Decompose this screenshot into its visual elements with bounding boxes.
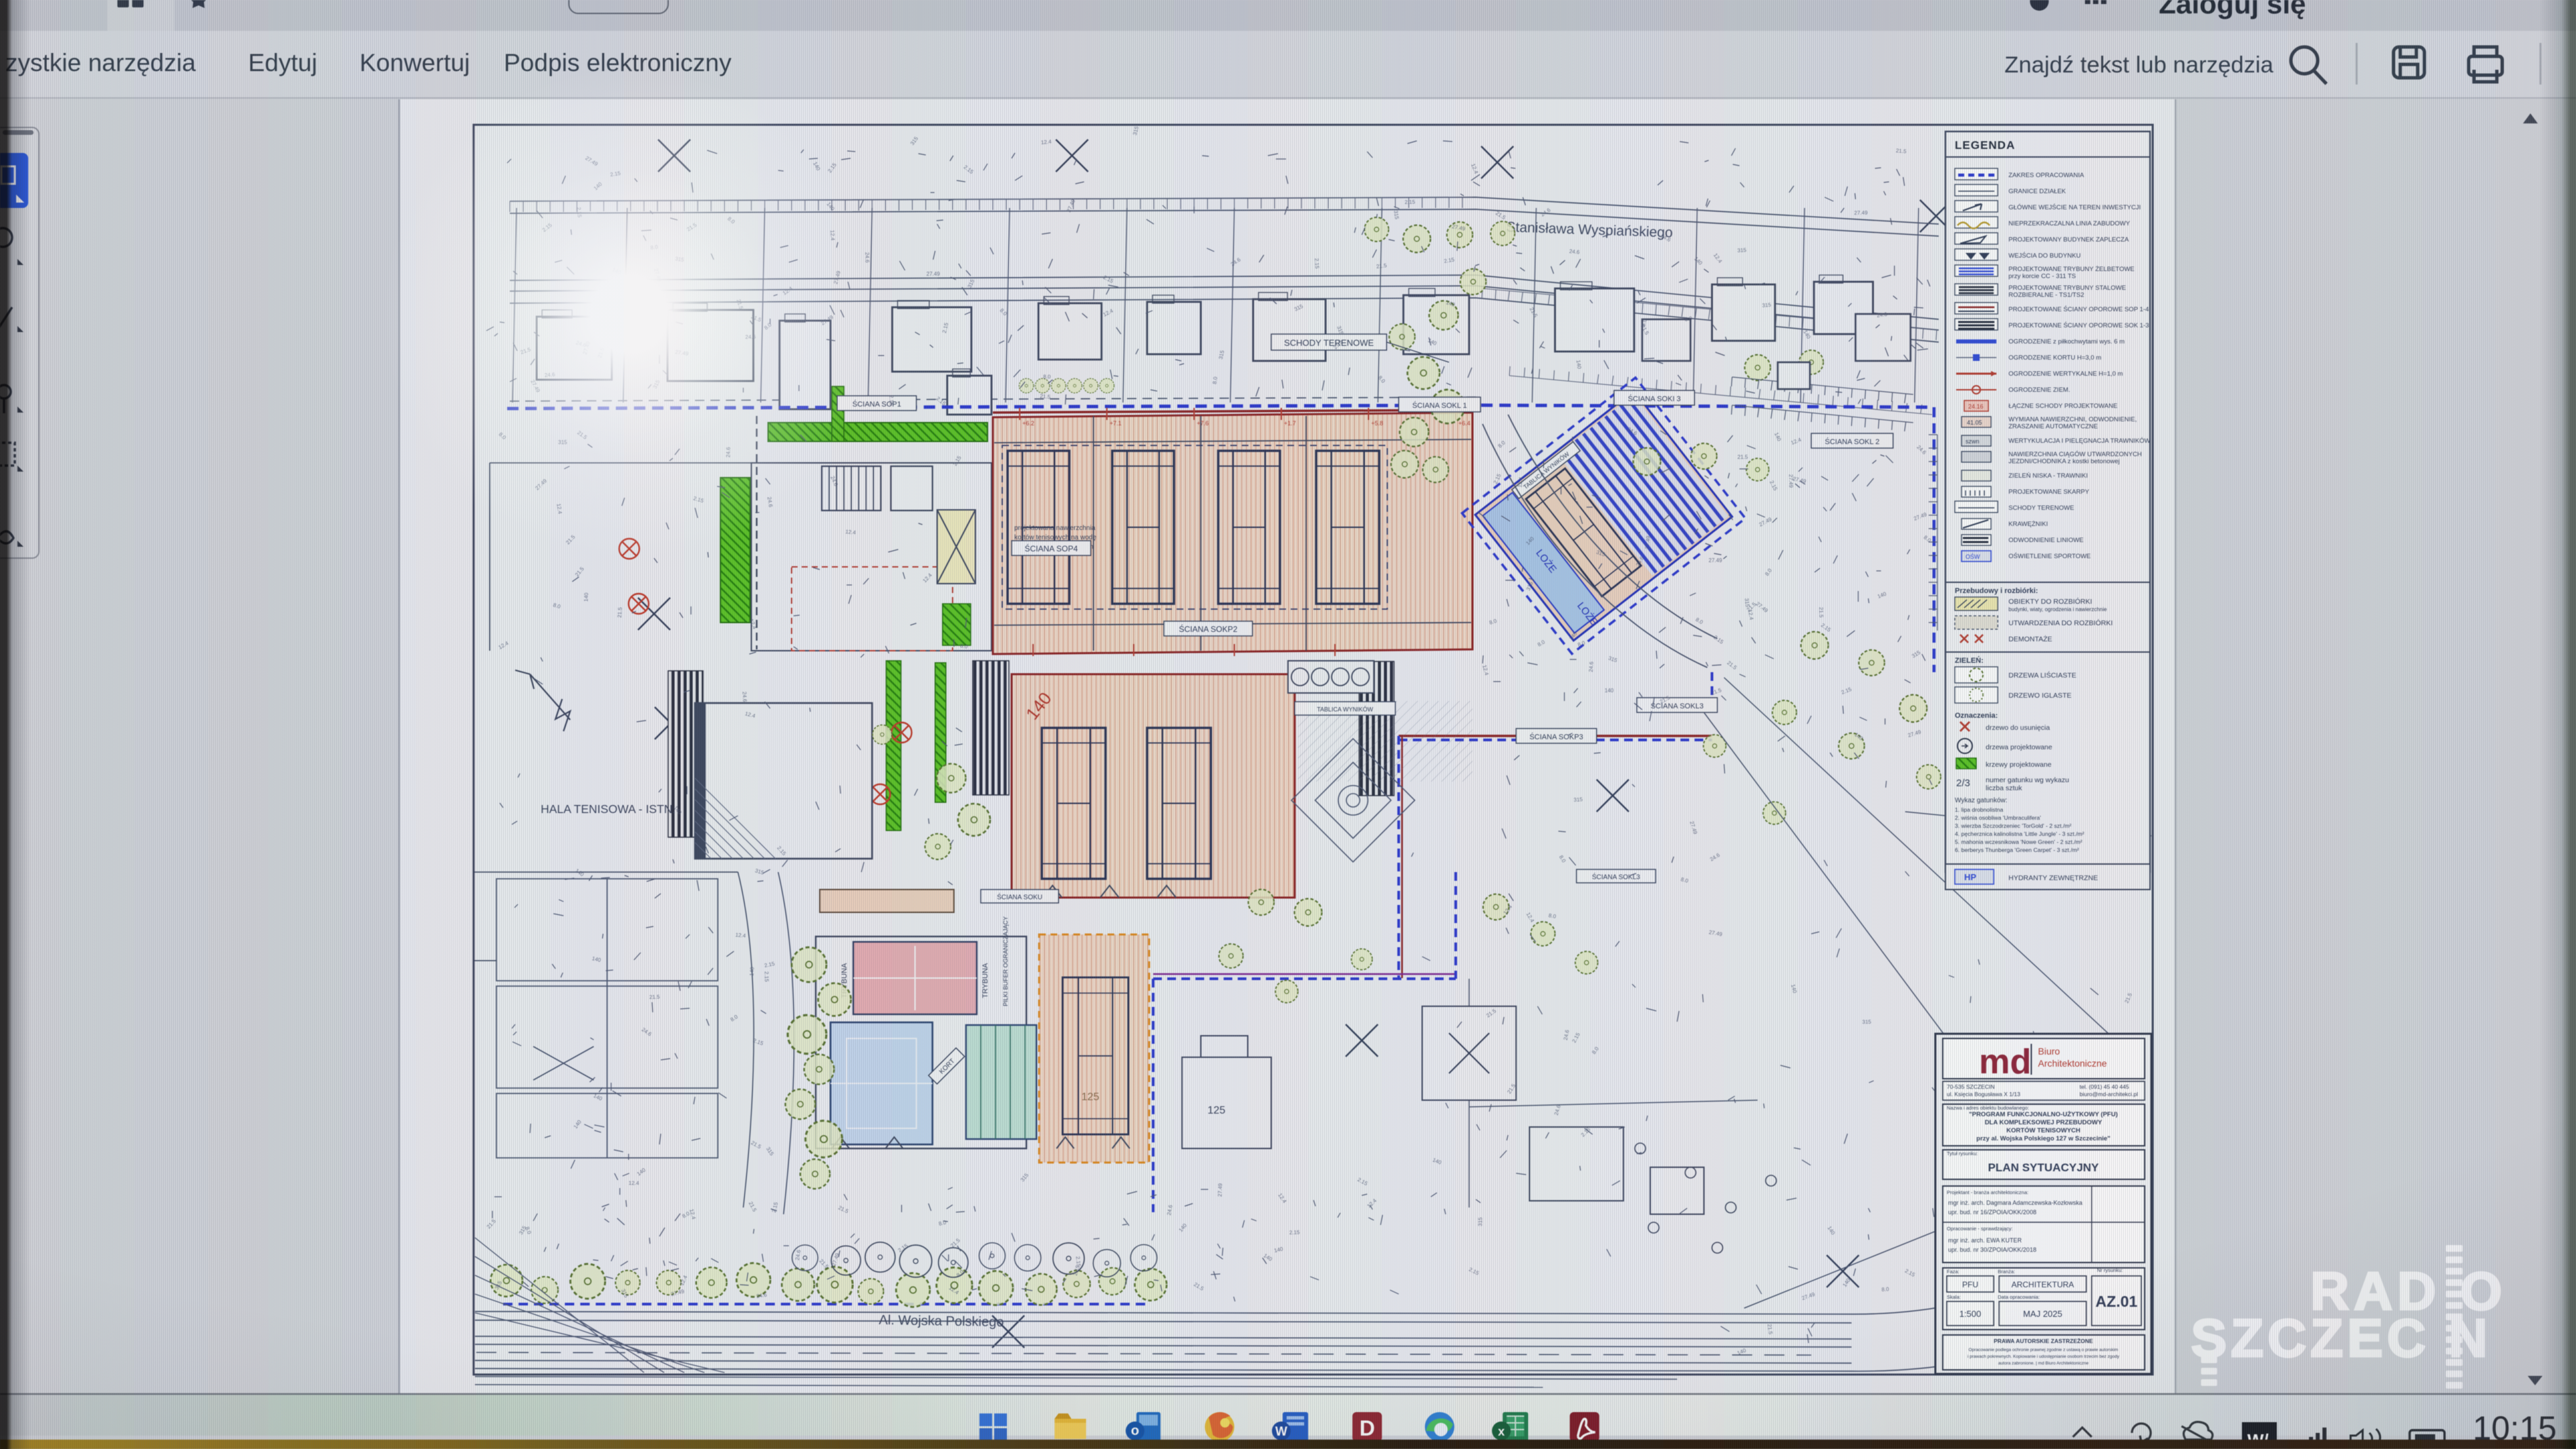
svg-text:+5.8: +5.8 [1371,420,1383,427]
svg-text:DEMONTAŻE: DEMONTAŻE [2008,635,2052,643]
svg-text:OBIEKTY DO ROZBIÓRKI: OBIEKTY DO ROZBIÓRKI [2008,597,2092,606]
svg-text:OGRODZENIE z piłkochwytami wys: OGRODZENIE z piłkochwytami wys. 6 m [2008,338,2125,345]
svg-text:Nr rysunku:: Nr rysunku: [2097,1267,2123,1273]
svg-text:315: 315 [1393,210,1400,220]
svg-text:PROJEKTOWANE SKARPY: PROJEKTOWANE SKARPY [2008,488,2090,496]
svg-text:KRAWĘŻNIKI: KRAWĘŻNIKI [2008,521,2048,528]
svg-text:315: 315 [1762,302,1772,309]
svg-text:2.15: 2.15 [1289,1229,1300,1236]
svg-text:ŚCIANA SOKP3: ŚCIANA SOKP3 [1529,733,1583,741]
svg-text:AZ.01: AZ.01 [2096,1293,2138,1310]
svg-text:12.4: 12.4 [845,529,857,536]
svg-text:27.49: 27.49 [1709,557,1723,563]
svg-text:140: 140 [749,967,755,976]
svg-text:2.15: 2.15 [576,207,583,218]
svg-text:WEJŚCIA DO BUDYNKU: WEJŚCIA DO BUDYNKU [2008,252,2081,260]
svg-text:27.49: 27.49 [1644,535,1652,549]
svg-text:315: 315 [1477,1217,1483,1226]
svg-text:+6.4: +6.4 [1458,420,1470,427]
svg-text:ŚCIANA SOKP2: ŚCIANA SOKP2 [1179,624,1238,634]
svg-text:2.15: 2.15 [1313,258,1320,270]
svg-text:x: x [1498,1425,1505,1438]
svg-text:upr. bud. nr 30/ZPOIA/OKK/2018: upr. bud. nr 30/ZPOIA/OKK/2018 [1948,1246,2037,1253]
svg-text:Konwertuj: Konwertuj [360,49,470,76]
svg-text:140: 140 [1575,360,1582,370]
svg-text:o: o [1131,1424,1139,1438]
svg-text:24.6: 24.6 [1588,661,1595,672]
svg-text:24.16: 24.16 [1968,403,1984,410]
svg-text:ZAKRES OPRACOWANIA: ZAKRES OPRACOWANIA [2008,172,2084,179]
svg-text:3. wierzba Szczodrzeniec 'TorG: 3. wierzba Szczodrzeniec 'TorGold' - 2 s… [1955,822,2072,829]
svg-text:OGRODZENIE WERTYKALNE H=1,0 m: OGRODZENIE WERTYKALNE H=1,0 m [2008,370,2123,378]
svg-text:PFU: PFU [1962,1280,1978,1289]
svg-text:LEGENDA: LEGENDA [1955,139,2015,152]
svg-text:70-535 SZCZECIN: 70-535 SZCZECIN [1947,1083,1994,1090]
svg-text:12.4: 12.4 [735,932,747,939]
svg-text:Opracowanie - sprawdzający:: Opracowanie - sprawdzający: [1947,1226,2012,1232]
svg-text:autora zabronione. | md Biuro: autora zabronione. | md Biuro Architekto… [1998,1361,2089,1366]
svg-text:21.5: 21.5 [1040,393,1051,400]
svg-text:"PROGRAM FUNKCJONALNO-UŻYTKOWY: "PROGRAM FUNKCJONALNO-UŻYTKOWY (PFU) [1969,1111,2118,1118]
svg-text:MAJ 2025: MAJ 2025 [2023,1309,2063,1319]
svg-text:przy korcie CC - 311 TS: przy korcie CC - 311 TS [2008,273,2076,280]
svg-text:ARCHITEKTURA: ARCHITEKTURA [2011,1280,2074,1289]
svg-text:HALA TENISOWA - ISTN.: HALA TENISOWA - ISTN. [541,802,676,816]
svg-text:140: 140 [1605,688,1614,694]
svg-text:W: W [1275,1425,1287,1439]
svg-text:Znajdź tekst lub narzędzia: Znajdź tekst lub narzędzia [2004,52,2274,78]
svg-text:budynki, wiaty, ogrodzenia i n: budynki, wiaty, ogrodzenia i nawierzchni… [2008,606,2107,612]
svg-text:2.15: 2.15 [888,395,895,406]
svg-text:KORTÓW TENISOWYCH: KORTÓW TENISOWYCH [2006,1126,2080,1134]
svg-text:24.6: 24.6 [725,447,731,458]
svg-text:Przebudowy i rozbiórki:: Przebudowy i rozbiórki: [1955,587,2038,595]
svg-text:PRAWA AUTORSKIE ZASTRZEŻONE: PRAWA AUTORSKIE ZASTRZEŻONE [1994,1338,2093,1344]
svg-text:6. berberys Thunberga 'Green C: 6. berberys Thunberga 'Green Carpet' - 3… [1955,847,2079,853]
svg-text:2. wiśnia osobliwa 'Umbraculif: 2. wiśnia osobliwa 'Umbraculifera' [1955,814,2041,821]
svg-text:8.0: 8.0 [1043,374,1051,380]
svg-text:125: 125 [1207,1105,1226,1116]
svg-text:8.0: 8.0 [960,643,969,650]
svg-text:liczba sztuk: liczba sztuk [1986,784,2023,792]
svg-text:Edytuj: Edytuj [248,49,317,76]
svg-text:drzewa projektowane: drzewa projektowane [1986,743,2052,751]
svg-text:przy al. Wojska Polskiego 127: przy al. Wojska Polskiego 127 w Szczecin… [1976,1135,2110,1142]
svg-text:PROJEKTOWANY BUDYNEK ZAPLECZA: PROJEKTOWANY BUDYNEK ZAPLECZA [2008,236,2129,244]
svg-text:Data opracowania:: Data opracowania: [1998,1294,2040,1300]
svg-text:8.0: 8.0 [650,244,659,251]
svg-text:2.15: 2.15 [763,971,769,982]
svg-text:TABLICA WYNIKÓW: TABLICA WYNIKÓW [1317,706,1373,712]
svg-text:PLAN SYTUACYJNY: PLAN SYTUACYJNY [1988,1161,2099,1174]
svg-text:1. lipa drobnolistna: 1. lipa drobnolistna [1955,806,2003,813]
svg-text:mgr inż. arch. EWA KUTER: mgr inż. arch. EWA KUTER [1948,1237,2022,1244]
svg-text:WYMIANA NAWIERZCHNI, ODWODNIEN: WYMIANA NAWIERZCHNI, ODWODNIENIE, [2008,416,2137,423]
svg-text:2/3: 2/3 [1956,777,1970,789]
svg-text:Skala:: Skala: [1947,1294,1961,1300]
svg-text:24.6: 24.6 [544,372,555,378]
svg-text:ŚCIANA SOKU: ŚCIANA SOKU [997,892,1042,901]
svg-text:1:500: 1:500 [1960,1309,1982,1319]
svg-text:Zaloguj się: Zaloguj się [2159,0,2306,19]
svg-text:NAWIERZCHNIA CIĄGÓW UTWARDZONY: NAWIERZCHNIA CIĄGÓW UTWARDZONYCH [2008,451,2142,458]
svg-text:PROJEKTOWANE TRYBUNY ŻELBETOWE: PROJEKTOWANE TRYBUNY ŻELBETOWE [2008,266,2135,273]
svg-text:+7.1: +7.1 [1110,420,1122,427]
svg-text:ŚCIANA SOP4: ŚCIANA SOP4 [1024,543,1078,553]
svg-text:DRZEWA LIŚCIASTE: DRZEWA LIŚCIASTE [2008,671,2076,680]
svg-text:PILKI BUFER OGRANICZAJĄCY: PILKI BUFER OGRANICZAJĄCY [1002,916,1009,1006]
svg-text:md: md [1979,1042,2031,1081]
svg-text:drzewo do usunięcia: drzewo do usunięcia [1986,724,2050,732]
svg-text:Wykaz gatunków:: Wykaz gatunków: [1955,797,2007,804]
svg-text:SCHODY TERENOWE: SCHODY TERENOWE [1284,337,1374,347]
svg-text:OGRODZENIE ZIEM.: OGRODZENIE ZIEM. [2008,386,2070,394]
svg-text:PROJEKTOWANE ŚCIANY OPOROWE SO: PROJEKTOWANE ŚCIANY OPOROWE SOP 1-4 [2008,305,2149,313]
svg-text:Nazwa i adres obiektu budowlan: Nazwa i adres obiektu budowlanego: [1947,1105,2029,1111]
svg-text:24.6: 24.6 [741,692,748,703]
svg-text:ODWODNIENIE LINIOWE: ODWODNIENIE LINIOWE [2008,537,2084,544]
svg-text:PROJEKTOWANE TRYBUNY STALOWE: PROJEKTOWANE TRYBUNY STALOWE [2008,284,2126,292]
svg-text:GRANICE DZIAŁEK: GRANICE DZIAŁEK [2008,188,2066,195]
svg-text:21.5: 21.5 [1737,454,1748,460]
svg-text:4. pęcherznica kalinolistna 'L: 4. pęcherznica kalinolistna 'Little Jung… [1955,830,2084,837]
svg-text:ZIELEŃ:: ZIELEŃ: [1955,656,1984,665]
svg-text:upr. bud. nr 16/ZPOIA/OKK/2008: upr. bud. nr 16/ZPOIA/OKK/2008 [1948,1209,2037,1216]
svg-text:315: 315 [1862,1019,1872,1025]
svg-text:21.5: 21.5 [616,606,623,618]
svg-text:21.5: 21.5 [1818,607,1824,618]
svg-text:szwn: szwn [1966,438,1980,445]
svg-text:2.15: 2.15 [1405,199,1415,205]
svg-text:ŁĄCZNE SCHODY PROJEKTOWANE: ŁĄCZNE SCHODY PROJEKTOWANE [2008,402,2117,410]
svg-text:SCHODY TERENOWE: SCHODY TERENOWE [2008,504,2074,512]
svg-text:biuro@md-architekci.pl: biuro@md-architekci.pl [2080,1091,2138,1097]
svg-text:HP: HP [1964,872,1976,882]
svg-text:Podpis elektroniczny: Podpis elektroniczny [504,49,732,76]
svg-text:ŚCIANA SOKL 1: ŚCIANA SOKL 1 [1412,401,1467,410]
svg-text:Oznaczenia:: Oznaczenia: [1955,712,1998,720]
svg-text:zystkie narzędzia: zystkie narzędzia [5,49,196,76]
svg-text:ZIELEŃ NISKA - TRAWNIKI: ZIELEŃ NISKA - TRAWNIKI [2008,472,2088,480]
svg-text:ŚCIANA SOKL 2: ŚCIANA SOKL 2 [1825,437,1880,446]
svg-text:OŚW: OŚW [1966,553,1980,560]
svg-text:12.4: 12.4 [829,230,836,241]
svg-text:140: 140 [583,592,590,602]
svg-text:DLA KOMPLEKSOWEJ PRZEBUDOWY: DLA KOMPLEKSOWEJ PRZEBUDOWY [1985,1119,2103,1126]
svg-text:Opracowanie podlega ochronie p: Opracowanie podlega ochronie prawnej zgo… [1969,1348,2118,1352]
svg-text:315: 315 [1574,796,1583,803]
svg-text:24.6: 24.6 [1569,248,1580,256]
svg-text:8.0: 8.0 [1212,376,1219,384]
svg-text:projektowana nawierzchnia: projektowana nawierzchnia [1014,525,1095,532]
svg-text:HYDRANTY ZEWNĘTRZNE: HYDRANTY ZEWNĘTRZNE [2008,874,2098,882]
svg-text:8.0: 8.0 [1882,1286,1890,1293]
svg-text:krzewy projektowane: krzewy projektowane [1986,761,2051,769]
svg-text:24.6: 24.6 [745,334,756,340]
svg-text:41.05: 41.05 [1967,419,1982,426]
svg-text:5. mahonia wczesnikowa 'Nowe G: 5. mahonia wczesnikowa 'Nowe Green' - 2 … [1955,839,2082,845]
svg-text:ŚCIANA SOKL3: ŚCIANA SOKL3 [1592,872,1640,881]
svg-text:ŚCIANA SOKL3: ŚCIANA SOKL3 [1651,702,1704,710]
svg-text:12.4: 12.4 [629,1180,639,1186]
svg-text:+7.6: +7.6 [1197,420,1209,427]
svg-text:Architektoniczne: Architektoniczne [2038,1058,2107,1069]
svg-text:mgr inż. arch. Dagmara Adamcze: mgr inż. arch. Dagmara Adamczewska-Kozło… [1948,1199,2082,1206]
svg-text:ROZBIERALNE - TS1/TS2: ROZBIERALNE - TS1/TS2 [2008,292,2084,299]
svg-text:OŚWIETLENIE SPORTOWE: OŚWIETLENIE SPORTOWE [2008,552,2091,560]
svg-text:27.49: 27.49 [926,271,941,277]
svg-text:Faza:: Faza: [1947,1269,1960,1275]
svg-text:numer gatunku wg wykazu: numer gatunku wg wykazu [1986,776,2069,784]
svg-text:DRZEWO IGLASTE: DRZEWO IGLASTE [2008,692,2072,700]
svg-text:12.4: 12.4 [1040,139,1052,146]
svg-text:Tytuł rysunku:: Tytuł rysunku: [1947,1150,1978,1157]
svg-text:TRYBUNA: TRYBUNA [981,963,989,998]
svg-text:27.49: 27.49 [1217,1183,1224,1197]
svg-text:27.49: 27.49 [1854,210,1868,216]
svg-text:+6.2: +6.2 [1022,420,1034,427]
svg-text:WERTYKULACJA I PIELĘGNACJA TRA: WERTYKULACJA I PIELĘGNACJA TRAWNIKÓW [2008,437,2151,445]
svg-text:315: 315 [1737,247,1747,254]
svg-text:ul. Księcia Bogusława X 1/13: ul. Księcia Bogusława X 1/13 [1947,1091,2021,1097]
svg-text:ŚCIANA SOKI 3: ŚCIANA SOKI 3 [1628,394,1681,403]
svg-text:Biuro: Biuro [2038,1046,2060,1057]
svg-text:GŁÓWNE WEJŚCIE NA TEREN INWEST: GŁÓWNE WEJŚCIE NA TEREN INWESTYCJI [2008,203,2141,211]
svg-text:JEZDNI/CHODNIKA z kostki beton: JEZDNI/CHODNIKA z kostki betonowej [2008,458,2120,466]
svg-text:Branża:: Branża: [1998,1269,2015,1275]
svg-text:125: 125 [1081,1091,1099,1103]
svg-text:UTWARDZENIA DO ROZBIÓRKI: UTWARDZENIA DO ROZBIÓRKI [2008,619,2112,627]
svg-text:ZRASZANIE AUTOMATYCZNE: ZRASZANIE AUTOMATYCZNE [2008,423,2098,431]
svg-text:21.5: 21.5 [1896,148,1907,154]
svg-text:i prawach pokrewnych. Kopiowan: i prawach pokrewnych. Kopiowanie i udost… [1968,1354,2120,1359]
svg-text:Al. Wojska Polskiego: Al. Wojska Polskiego [879,1313,1004,1330]
svg-text:315: 315 [558,439,568,445]
svg-text:+1.7: +1.7 [1284,420,1296,427]
svg-text:tel. (091) 45 40 445: tel. (091) 45 40 445 [2080,1083,2129,1090]
svg-text:D: D [1359,1416,1375,1440]
svg-text:NIEPRZEKRACZALNA LINIA ZABUDOW: NIEPRZEKRACZALNA LINIA ZABUDOWY [2008,220,2131,227]
svg-text:PROJEKTOWANE ŚCIANY OPOROWE SO: PROJEKTOWANE ŚCIANY OPOROWE SOK 1-3 [2008,321,2149,329]
svg-text:24.6: 24.6 [864,252,870,263]
svg-text:OGRODZENIE KORTU H=3,0 m: OGRODZENIE KORTU H=3,0 m [2008,354,2101,362]
svg-text:21.5: 21.5 [649,994,660,1000]
svg-text:Projektant - branża architekto: Projektant - branża architektoniczna: [1947,1189,2029,1195]
